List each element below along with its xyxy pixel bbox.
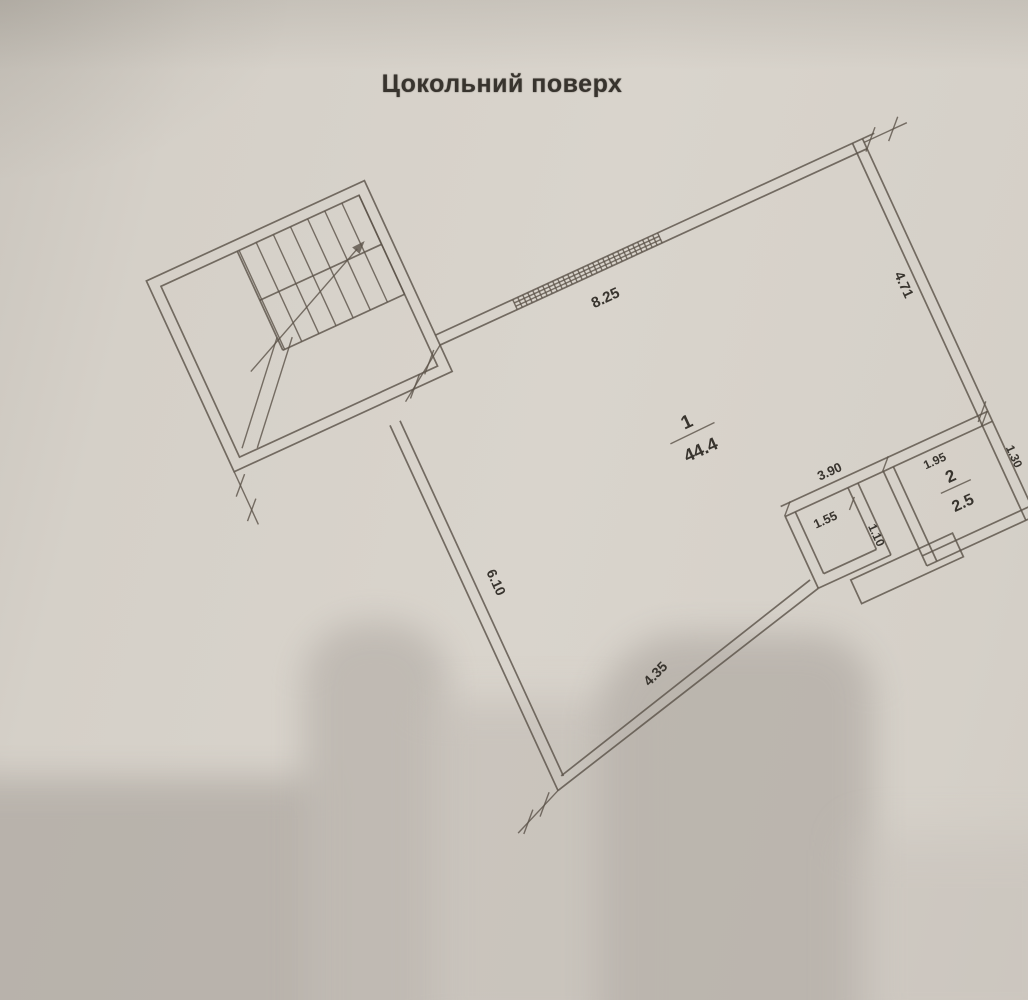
- top-wall: [435, 133, 878, 345]
- floor-plan-drawing: 8.25 4.71 6.10 4.35 3.90 1.95 1.30 1.55 …: [0, 0, 1028, 1000]
- dim-top-wall: 8.25: [589, 284, 623, 312]
- dim-niche-depth: 1.10: [865, 522, 888, 549]
- dim-room2-depth: 1.30: [1003, 443, 1026, 470]
- dim-left-wall: 6.10: [483, 567, 509, 599]
- room-1-area: 44.4: [681, 433, 721, 466]
- left-wall: [390, 421, 568, 791]
- room-1-number: 1: [678, 411, 697, 435]
- window-hatch: [513, 233, 663, 310]
- room2-walls: [883, 421, 1028, 566]
- dim-niche-width: 1.55: [811, 509, 839, 532]
- door-rectangle: [851, 533, 964, 603]
- room-2-number: 2: [942, 466, 959, 487]
- photographed-floor-plan: Цокольний поверх: [0, 0, 1028, 1000]
- staircase: [146, 181, 452, 472]
- room-2-area: 2.5: [949, 491, 976, 516]
- stair-break-lines: [206, 332, 328, 454]
- dim-right-wall: 4.71: [891, 269, 917, 301]
- dim-bottom-wall: 4.35: [640, 658, 671, 689]
- bottom-wall: [522, 578, 850, 790]
